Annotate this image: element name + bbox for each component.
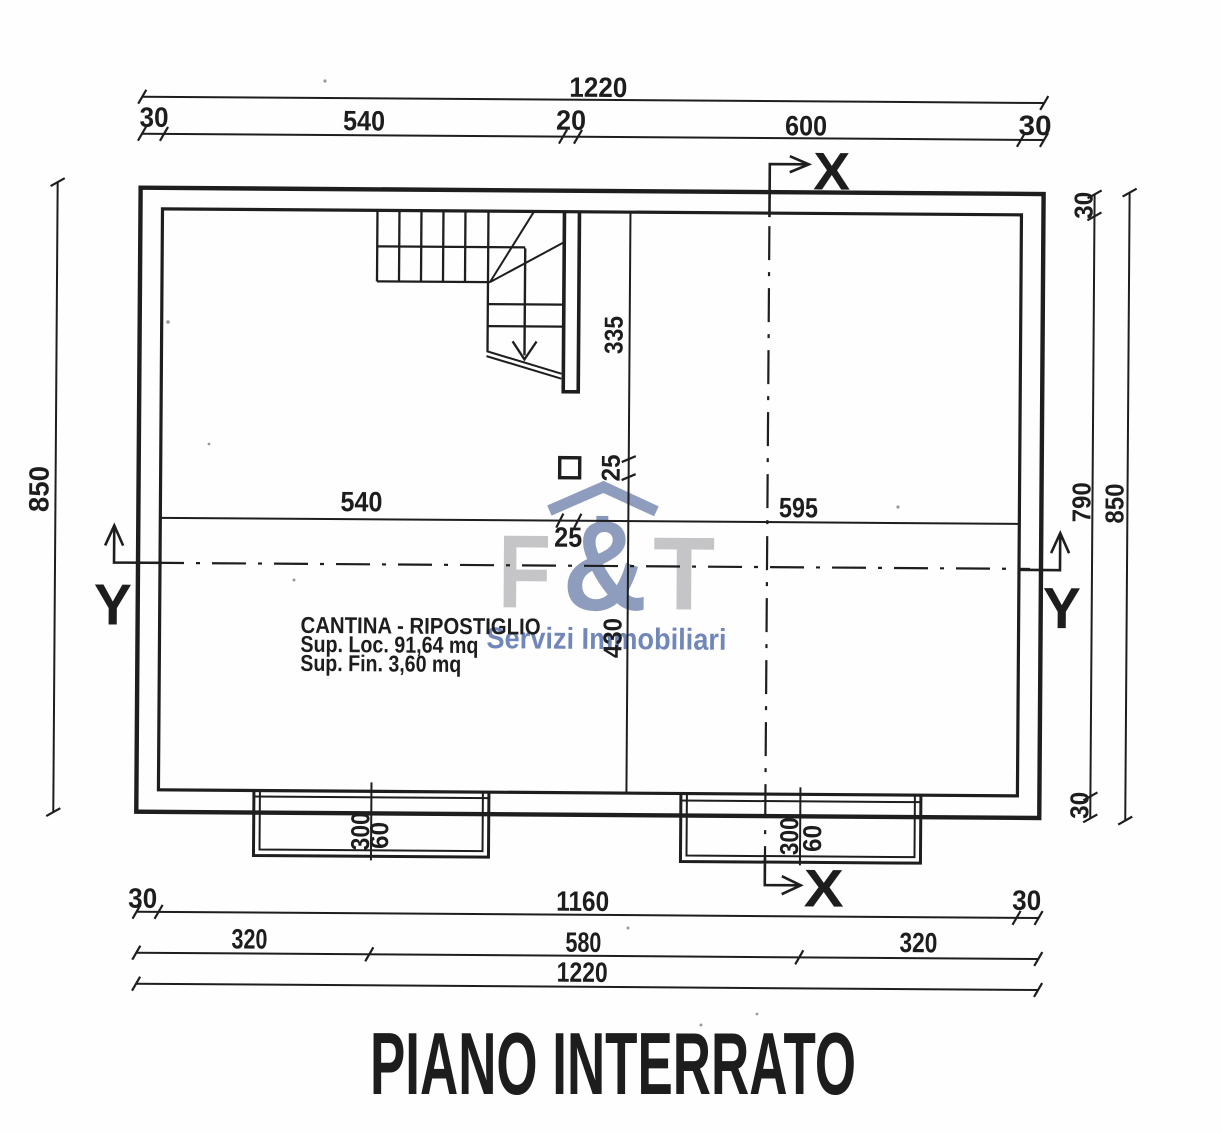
svg-text:580: 580	[565, 927, 601, 958]
svg-text:60: 60	[797, 825, 827, 852]
svg-text:320: 320	[899, 927, 937, 958]
svg-text:540: 540	[340, 486, 382, 517]
svg-text:600: 600	[785, 110, 827, 141]
svg-text:30: 30	[128, 883, 157, 914]
svg-text:30: 30	[1012, 885, 1041, 916]
svg-text:850: 850	[1099, 483, 1129, 523]
svg-text:25: 25	[596, 454, 626, 481]
svg-text:20: 20	[556, 105, 586, 136]
svg-text:540: 540	[343, 105, 385, 136]
svg-text:X: X	[804, 859, 844, 918]
svg-text:Sup. Fin. 3,60 mq: Sup. Fin. 3,60 mq	[300, 650, 461, 677]
svg-text:Y: Y	[1042, 576, 1080, 641]
svg-text:30: 30	[140, 102, 169, 133]
svg-text:Y: Y	[93, 572, 131, 637]
svg-text:320: 320	[231, 923, 267, 954]
svg-text:60: 60	[364, 822, 394, 849]
svg-text:30: 30	[1068, 192, 1098, 219]
svg-text:30: 30	[1064, 792, 1094, 819]
svg-text:850: 850	[23, 466, 54, 512]
svg-text:1220: 1220	[569, 72, 627, 103]
svg-text:335: 335	[598, 316, 628, 354]
svg-text:1220: 1220	[557, 957, 608, 988]
svg-text:25: 25	[554, 522, 582, 553]
svg-text:1160: 1160	[556, 886, 609, 917]
svg-text:790: 790	[1066, 482, 1096, 522]
svg-text:T: T	[653, 516, 716, 632]
svg-text:PIANO INTERRATO: PIANO INTERRATO	[370, 1014, 856, 1113]
svg-text:430: 430	[597, 618, 627, 658]
svg-text:30: 30	[1018, 110, 1051, 141]
svg-text:595: 595	[779, 492, 818, 523]
